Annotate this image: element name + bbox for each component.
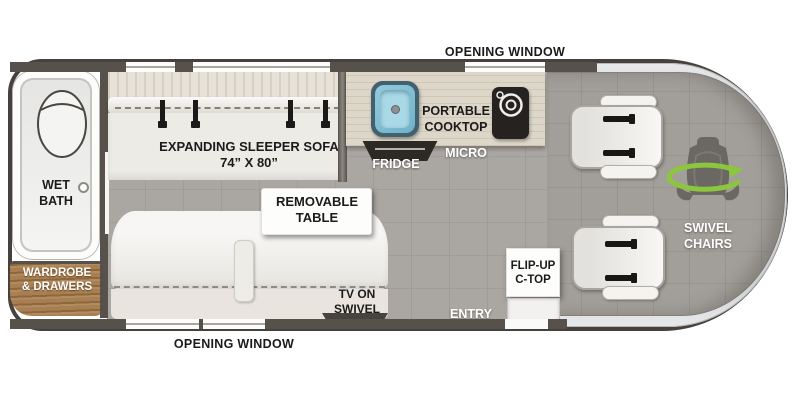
seatbelt-buckle [191,121,200,128]
toilet-icon [34,86,90,160]
entry-door-opening [505,319,548,329]
flip-up-ctop-label-line1: FLIP-UP [511,260,556,272]
bottom-wall-segment [265,319,505,329]
micro-label: MICRO [445,146,487,162]
seatbelt-buckle [629,114,635,124]
wardrobe-label-line2: & DRAWERS [22,281,92,293]
swivel-chairs-label-line2: CHAIRS [684,237,732,251]
rv-floorplan: OPENING WINDOW OPENING WINDOW WET BATH W… [0,0,800,400]
faucet-icon [391,105,400,114]
bottom-opening-window [126,319,199,329]
bottom-wall-segment [548,319,567,329]
sleeper-sofa-label: EXPANDING SLEEPER SOFA 74” X 80” [159,139,339,172]
top-wall-segment [10,62,126,72]
sink-icon [371,81,419,137]
top-window [126,62,175,72]
seatbelt-icon [603,116,632,122]
wet-bath-label: WET BATH [39,178,73,209]
flip-up-ctop-label: FLIP-UP C-TOP [511,259,556,288]
top-wall-segment [175,62,193,72]
bottom-wall-segment [10,319,126,329]
portable-cooktop-label: PORTABLE COOKTOP [422,104,490,135]
bottom-window [203,319,265,329]
top-wall-segment [330,62,465,72]
passenger-seat [570,105,663,169]
seatbelt-icon [605,241,634,247]
seatbelt-buckle [631,239,637,249]
portable-cooktop [492,87,529,139]
sink-basin [375,85,415,133]
seatbelt-buckle [286,121,295,128]
sofa-center-console [234,240,254,302]
portable-cooktop-label-line1: PORTABLE [422,104,490,118]
swivel-chairs-label-line1: SWIVEL [684,221,732,235]
seatbelt-buckle [631,273,637,283]
sleeper-sofa-cushion [108,97,345,114]
seatbelt-icon [603,150,632,156]
seatbelt-buckle [158,121,167,128]
wardrobe-label: WARDROBE & DRAWERS [22,266,92,295]
cooktop-burner-icon [492,87,529,139]
removable-table-label-line2: TABLE [296,210,338,225]
sleeper-sofa-label-line2: 74” X 80” [220,155,278,170]
sleeper-sofa-label-line1: EXPANDING SLEEPER SOFA [159,139,339,154]
tv-label: TV ON SWIVEL [334,287,380,317]
seatbelt-buckle [321,121,330,128]
top-window [193,62,330,72]
removable-table-label-line1: REMOVABLE [276,194,358,209]
fridge-label: FRIDGE [372,157,419,173]
seatbelt-icon [605,275,634,281]
passenger-seat-armrest [600,165,657,179]
opening-window-bottom-label: OPENING WINDOW [174,337,294,353]
portable-cooktop-label-line2: COOKTOP [425,120,488,134]
seatbelt-buckle [629,148,635,158]
tv-label-line1: TV ON [339,287,376,301]
wardrobe-label-line1: WARDROBE [23,267,91,279]
top-wall-segment [545,62,597,72]
wet-bath-label-line2: BATH [39,194,73,208]
wet-bath-label-line1: WET [42,178,70,192]
flip-up-ctop-label-line2: C-TOP [515,274,551,286]
shower-drain-icon [78,182,89,193]
driver-seat-armrest [602,286,659,300]
removable-table-label: REMOVABLE TABLE [276,194,358,227]
top-opening-window [465,62,545,72]
fridge-detail-line [375,148,425,150]
swivel-chairs-label: SWIVEL CHAIRS [684,221,732,252]
swivel-chair-icon [666,132,750,216]
